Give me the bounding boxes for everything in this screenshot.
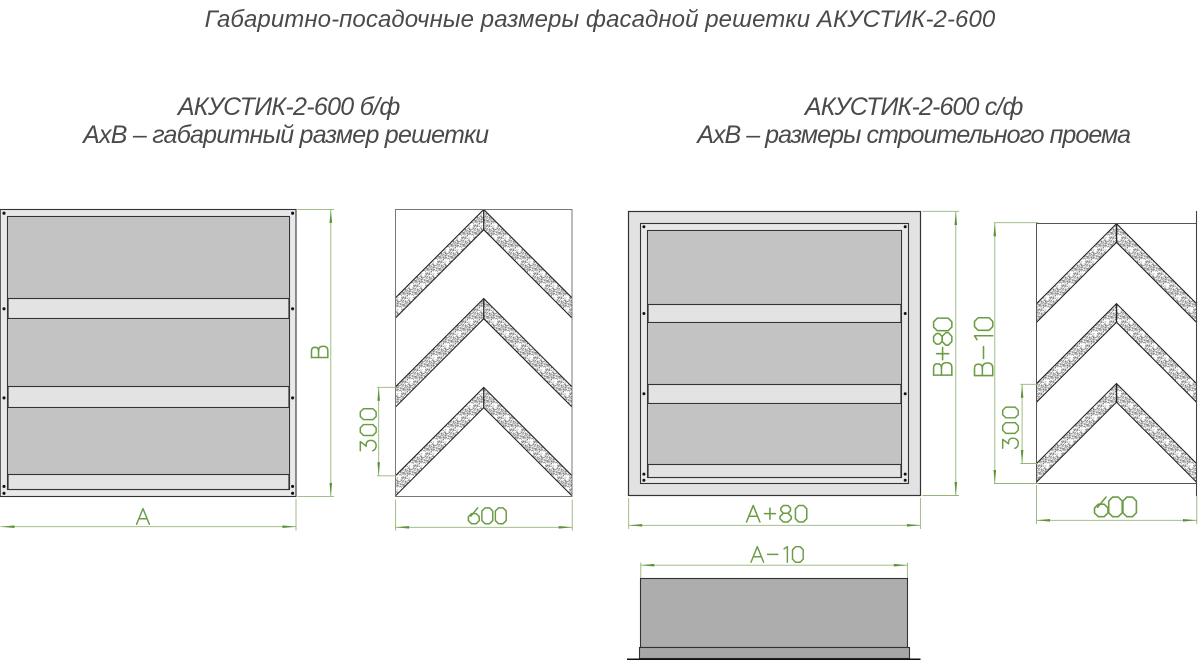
svg-text:АхВ – размеры строительного пр: АхВ – размеры строительного проема: [695, 121, 1131, 149]
svg-text:АКУСТИК-2-600 с/ф: АКУСТИК-2-600 с/ф: [803, 93, 1024, 121]
svg-text:Габаритно-посадочные размеры ф: Габаритно-посадочные размеры фасадной ре…: [205, 6, 996, 33]
svg-text:АКУСТИК-2-600 б/ф: АКУСТИК-2-600 б/ф: [176, 93, 401, 121]
svg-text:АхВ – габаритный размер решетк: АхВ – габаритный размер решетки: [81, 121, 489, 149]
